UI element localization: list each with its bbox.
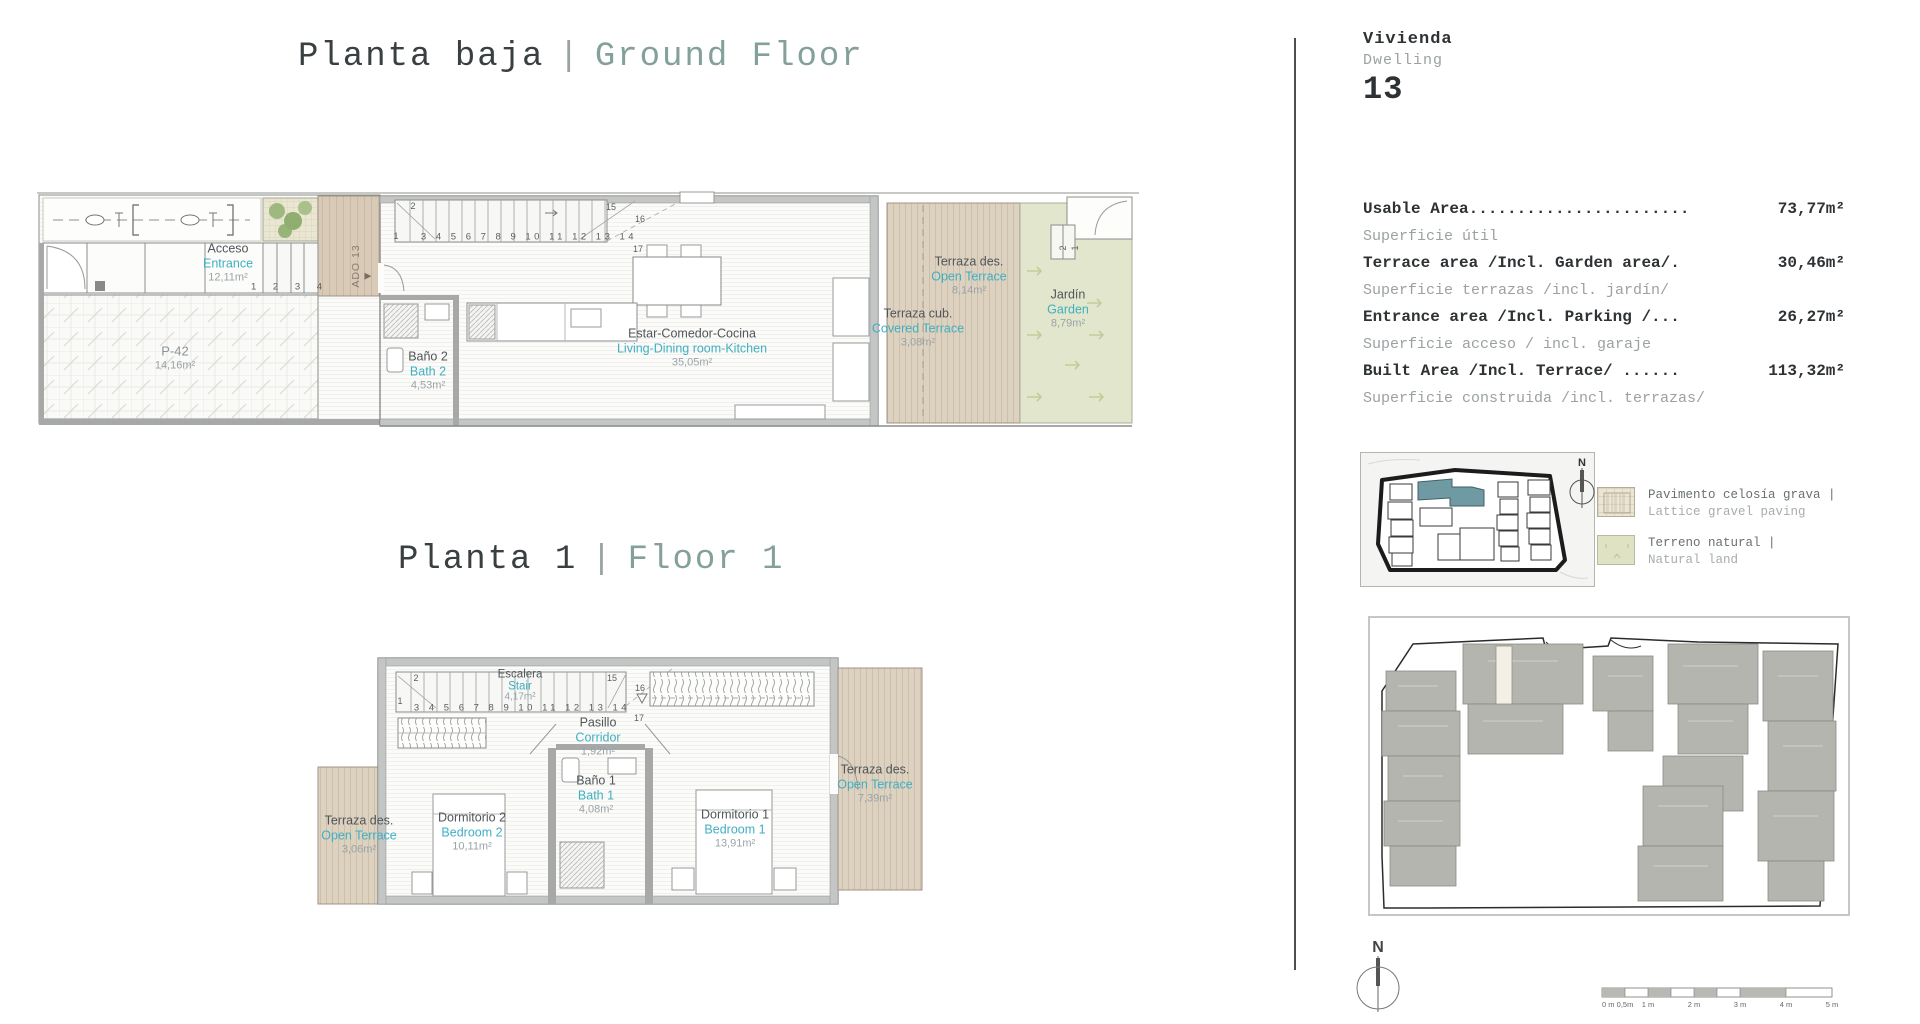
svg-text:N: N xyxy=(1372,939,1384,956)
room-label-garden: Jardín Garden 8,79m² xyxy=(1047,287,1089,330)
svg-text:3 m: 3 m xyxy=(1734,1000,1747,1009)
first-floor-title: Planta 1|Floor 1 xyxy=(398,541,784,579)
ff-stair-1: 1 xyxy=(397,696,402,706)
room-label-stair: Escalera Stair 4,17m² xyxy=(498,669,543,704)
ff-stair-15: 15 xyxy=(607,673,617,683)
ground-floor-plan xyxy=(35,183,1145,443)
gf-stair-2: 2 xyxy=(410,201,415,211)
scale-bar: 0 m 0,5m 1 m 2 m 3 m 4 m 5 m xyxy=(1600,984,1840,1012)
dwelling-number: 13 xyxy=(1363,71,1453,108)
measurement-row: Usable Area.......................73,77m… xyxy=(1363,196,1845,223)
legend-item-paving: Pavimento celosía grava | Lattice gravel… xyxy=(1597,487,1836,521)
measurement-value: 73,77m² xyxy=(1778,196,1845,223)
ground-floor-title-es: Planta baja xyxy=(298,38,544,76)
scale-bar-labels: 0 m 0,5m 1 m 2 m 3 m 4 m 5 m xyxy=(1602,1000,1838,1009)
room-label-living: Estar-Comedor-Cocina Living-Dining room-… xyxy=(617,326,767,369)
room-label-entrance: Acceso Entrance 12,11m² xyxy=(203,241,253,284)
room-label-corridor: Pasillo Corridor 1,92m² xyxy=(575,715,620,758)
svg-text:1 m: 1 m xyxy=(1642,1000,1655,1009)
room-label-terrace-left: Terraza des. Open Terrace 3,06m² xyxy=(321,813,397,856)
ff-stair-17: 17 xyxy=(634,713,644,723)
measurement-value: 30,46m² xyxy=(1778,250,1845,277)
ff-stair-numbers: 3 4 5 6 7 8 9 10 11 12 13 14 xyxy=(414,703,630,714)
room-label-bath1: Baño 1 Bath 1 4,08m² xyxy=(576,773,616,816)
svg-text:5 m: 5 m xyxy=(1826,1000,1839,1009)
title-separator: | xyxy=(558,38,580,76)
dwelling-header: Vivienda Dwelling 13 xyxy=(1363,30,1453,108)
gf-stair-16: 16 xyxy=(635,214,645,224)
gf-stair-numbers: 3 4 5 6 7 8 9 10 11 12 13 14 xyxy=(421,232,637,243)
ff-stair-16: 16 xyxy=(635,683,645,693)
measurement-row: Terrace area /Incl. Garden area/.30,46m² xyxy=(1363,250,1845,277)
room-label-covered-terrace: Terraza cub. Covered Terrace 3,08m² xyxy=(872,306,964,349)
measurement-row: Entrance area /Incl. Parking /...26,27m² xyxy=(1363,304,1845,331)
gf-stair-17: 17 xyxy=(633,244,643,254)
vertical-divider xyxy=(1294,38,1296,970)
key-plan: N xyxy=(1360,452,1595,587)
measurement-row-es: Superficie útil xyxy=(1363,223,1845,250)
siteplan-highlighted-dwelling xyxy=(1496,646,1512,704)
measurement-row-es: Superficie acceso / incl. garaje xyxy=(1363,331,1845,358)
legend-swatch-natural-land xyxy=(1597,535,1635,565)
legend-swatch-paving xyxy=(1597,487,1635,517)
entry-step-numbers: 1 2 3 4 xyxy=(251,282,329,293)
first-floor-plan xyxy=(308,646,928,908)
svg-text:0,5m: 0,5m xyxy=(1617,1000,1634,1009)
room-label-parking: P-42 14,16m² xyxy=(155,344,195,373)
measurement-value: 26,27m² xyxy=(1778,304,1845,331)
first-floor-title-es: Planta 1 xyxy=(398,541,577,579)
room-label-open-terrace: Terraza des. Open Terrace 8,14m² xyxy=(931,254,1007,297)
dwelling-label-es: Vivienda xyxy=(1363,30,1453,49)
first-floor-title-en: Floor 1 xyxy=(628,541,785,579)
svg-text:4 m: 4 m xyxy=(1780,1000,1793,1009)
room-label-bedroom1: Dormitorio 1 Bedroom 1 13,91m² xyxy=(701,807,769,850)
garden-step-1: 1 xyxy=(1070,245,1080,250)
garden-step-2: 2 xyxy=(1058,245,1068,250)
room-label-bedroom2: Dormitorio 2 Bedroom 2 10,11m² xyxy=(438,810,506,853)
site-plan xyxy=(1368,616,1850,916)
measurement-row-es: Superficie construida /incl. terrazas/ xyxy=(1363,385,1845,412)
ground-floor-title-en: Ground Floor xyxy=(595,38,864,76)
title-separator: | xyxy=(591,541,613,579)
room-label-terrace-right: Terraza des. Open Terrace 7,39m² xyxy=(837,762,913,805)
measurement-value: 113,32m² xyxy=(1768,358,1845,385)
measurement-row: Built Area /Incl. Terrace/ ......113,32m… xyxy=(1363,358,1845,385)
svg-text:N: N xyxy=(1578,457,1586,469)
ground-floor-title: Planta baja|Ground Floor xyxy=(298,38,864,76)
legend-item-natural-land: Terreno natural | Natural land xyxy=(1597,535,1776,569)
svg-text:0 m: 0 m xyxy=(1602,1000,1615,1009)
room-label-bath2: Baño 2 Bath 2 4,53m² xyxy=(408,349,448,392)
measurement-row-es: Superficie terrazas /incl. jardín/ xyxy=(1363,277,1845,304)
dwelling-label-en: Dwelling xyxy=(1363,52,1453,69)
svg-text:2 m: 2 m xyxy=(1688,1000,1701,1009)
gf-stair-15: 15 xyxy=(606,202,616,212)
gf-stair-1: 1 xyxy=(393,231,398,241)
area-measurements: Usable Area.......................73,77m… xyxy=(1363,196,1845,412)
ff-stair-2: 2 xyxy=(413,673,418,683)
north-arrow: N xyxy=(1352,936,1412,1020)
entry-marker-arrow: ▶ xyxy=(365,271,372,282)
entry-marker-ado13: ADO 13 xyxy=(350,244,362,287)
